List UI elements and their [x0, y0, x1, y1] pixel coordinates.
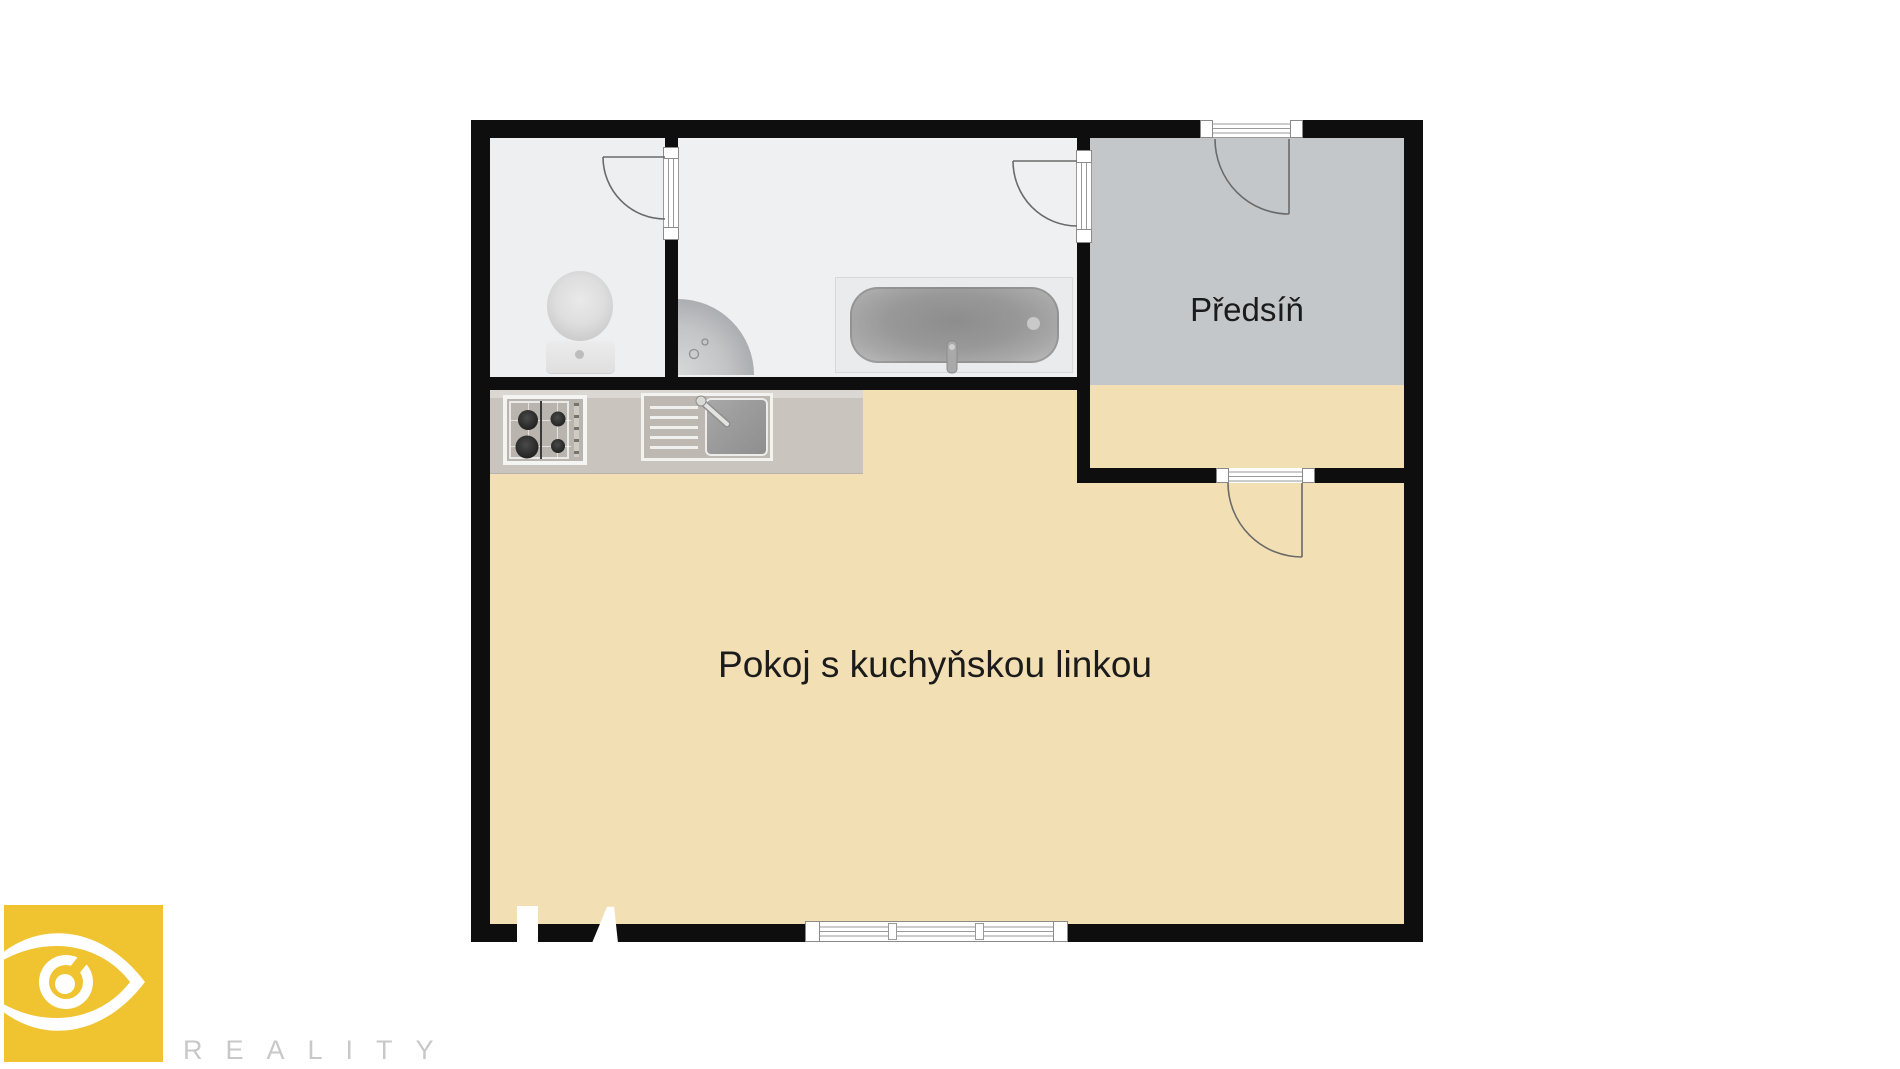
watermark-notch [517, 906, 538, 943]
drainboard-line [650, 426, 698, 429]
hallway-label: Předsíň [1090, 291, 1404, 329]
wall-left [471, 120, 490, 942]
bathtub [835, 277, 1073, 373]
bathtub-drain [1027, 317, 1040, 330]
window-jamb [806, 922, 820, 941]
toilet-bowl [547, 271, 613, 341]
wc-door-jamb [663, 147, 679, 159]
brand-wordmark: REALITY [183, 1035, 457, 1066]
floorplan-canvas: Předsíň Pokoj s kuchyňskou linkou [0, 0, 1900, 1069]
drainboard-line [650, 406, 698, 409]
toilet-tank [546, 341, 615, 373]
window-mullion [975, 923, 984, 940]
stove-burner [551, 412, 566, 427]
floorplan-page: { "canvas": {"width": 1900, "height": 10… [0, 0, 1900, 1069]
window-mullion [888, 923, 897, 940]
eye-icon [4, 905, 163, 1062]
stove-burner [551, 439, 565, 453]
wall-right [1404, 120, 1423, 942]
stove-controls [574, 403, 579, 457]
stove-burner [516, 436, 539, 459]
living-room-label: Pokoj s kuchyňskou linkou [478, 644, 1392, 686]
entrance-door-jamb [1290, 120, 1303, 138]
entrance-door-jamb [1200, 120, 1213, 138]
stove [503, 395, 587, 465]
bathroom-door-frame [1076, 163, 1092, 229]
wall-bottom-right-segment [1068, 924, 1423, 942]
drainboard-line [650, 416, 698, 419]
bathroom-door-jamb [1076, 229, 1092, 243]
wc-door-frame [663, 159, 679, 227]
hallway-door-jamb [1302, 468, 1315, 483]
hallway-door-jamb [1216, 468, 1229, 483]
drainboard-line [650, 436, 698, 439]
drainboard-line [650, 446, 698, 449]
window [805, 921, 1068, 942]
window-jamb [1053, 922, 1067, 941]
bathroom-door-jamb [1076, 150, 1092, 163]
kitchen-sink [641, 393, 773, 461]
entrance-door-threshold [1213, 120, 1290, 138]
wc-door-jamb [663, 227, 679, 240]
window-glazing-lines [818, 923, 1055, 940]
stove-burner [518, 410, 538, 430]
stove-divider [540, 401, 542, 459]
hallway-door-threshold [1229, 468, 1302, 483]
brand-logo [4, 905, 163, 1062]
toilet-flush-button [575, 350, 584, 359]
wall-bathroom-living [471, 377, 1090, 390]
sink-basin [705, 398, 768, 456]
